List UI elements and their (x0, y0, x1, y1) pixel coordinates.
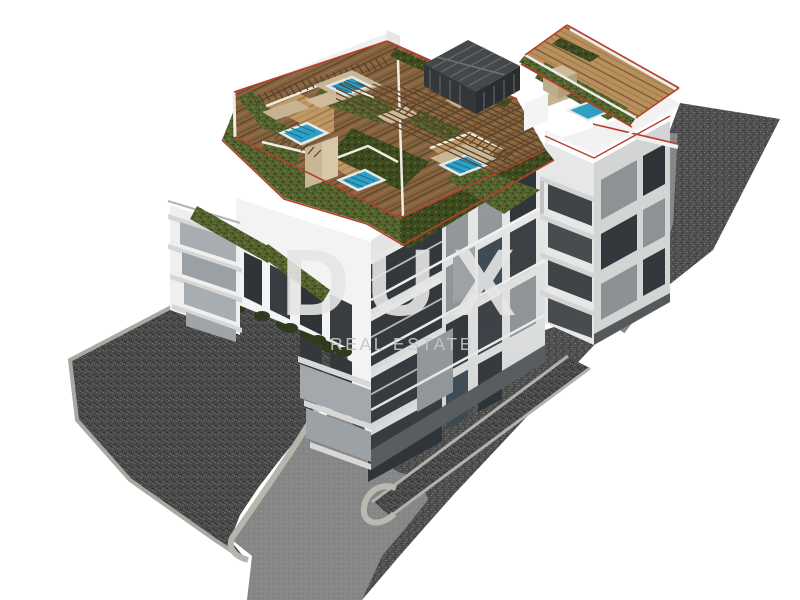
svg-text:DUX: DUX (281, 230, 533, 336)
svg-text:REAL ESTATE: REAL ESTATE (330, 334, 474, 354)
